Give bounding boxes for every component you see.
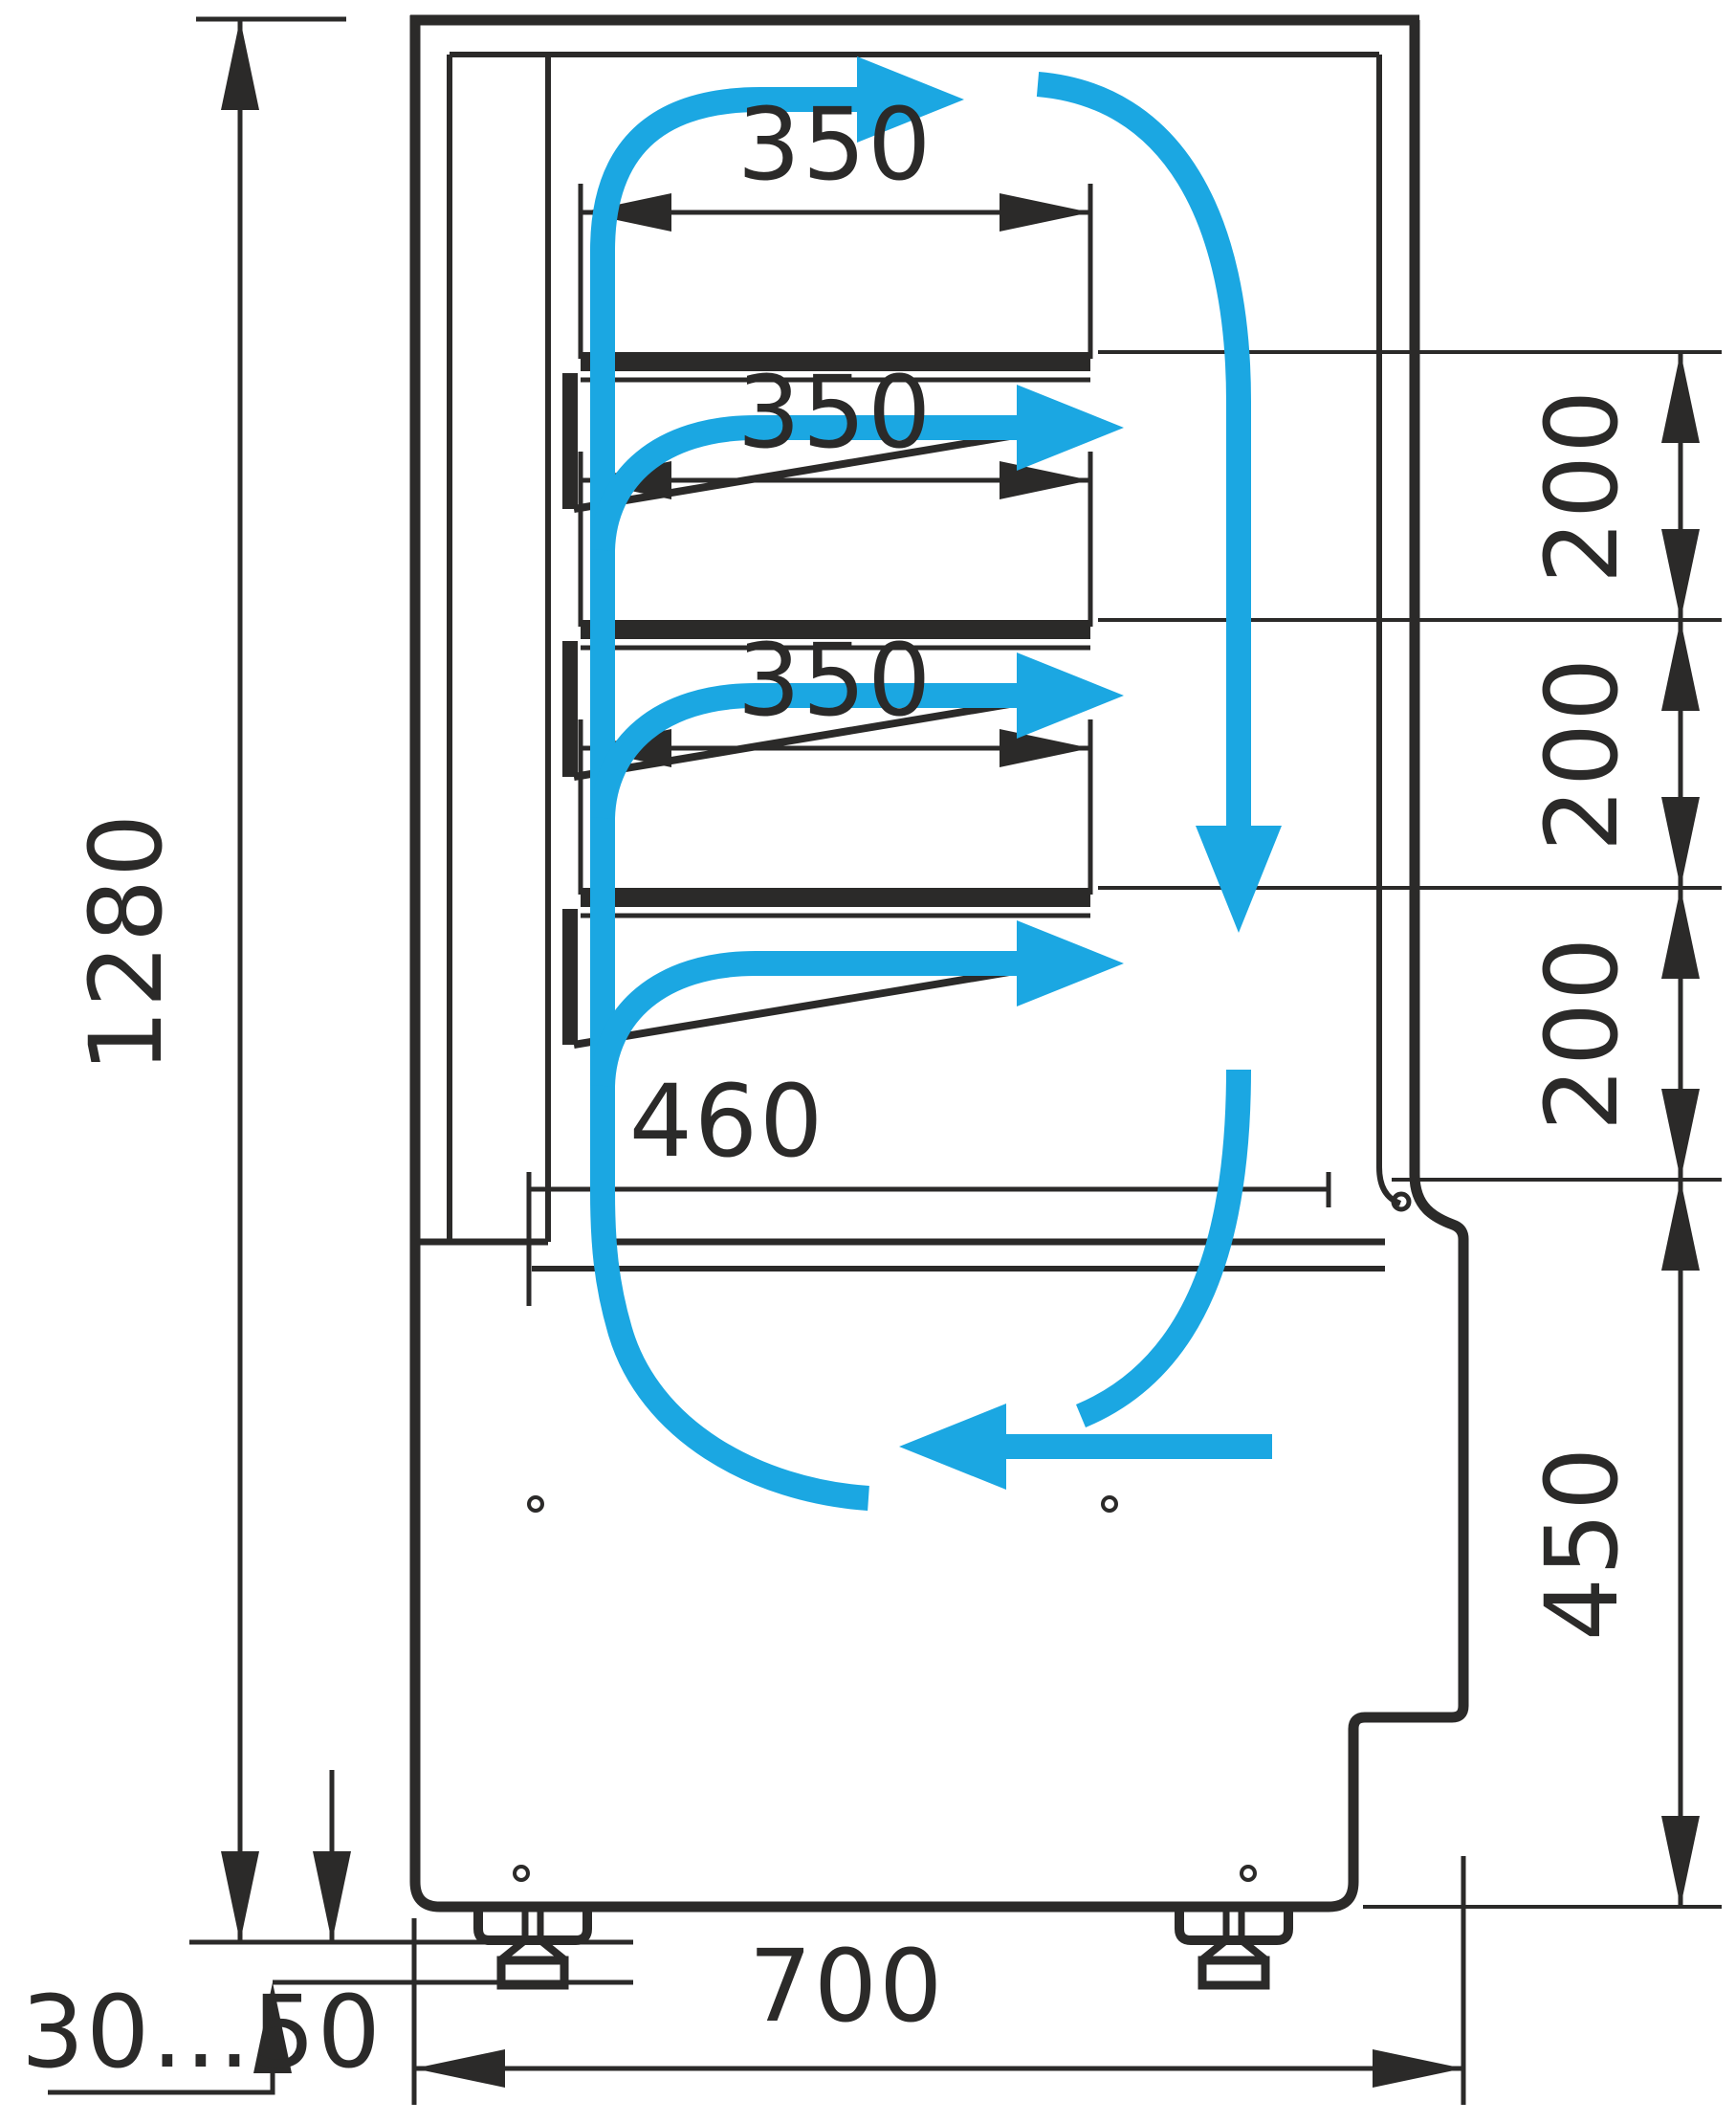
dim-arrowhead-right [1373, 2049, 1463, 2088]
display-case-section-drawing: 350 350 350 460 1280 200 200 200 450 700… [0, 0, 1736, 2123]
dim-arrowhead-left [414, 2049, 505, 2088]
shelf-depth-label-2: 350 [737, 354, 934, 471]
mounting-hole [529, 1497, 542, 1511]
right-foot-flange [1179, 1909, 1288, 1940]
bottom-shelf-depth-label: 460 [629, 1063, 825, 1180]
right-foot-pad [1202, 1960, 1265, 1985]
airflow-arrowhead-right [1017, 920, 1124, 1006]
dim-arrowhead-down [1661, 529, 1700, 620]
airflow-arrows [603, 84, 1272, 1498]
airflow-arrowhead-left [899, 1404, 1006, 1490]
dim-arrowhead-right [1000, 461, 1090, 499]
mounting-hole [1242, 1867, 1255, 1880]
dim-arrowhead-right [1000, 193, 1090, 232]
dim-arrowhead-down [1661, 1816, 1700, 1907]
left-foot [478, 1909, 587, 1985]
airflow-arrowhead-down [1196, 826, 1282, 933]
airflow-back-duct-up [603, 100, 868, 1498]
dim-arrowhead-up [1661, 1180, 1700, 1271]
dimension-arrowheads [221, 19, 1700, 2088]
shelf-depth-label-1: 350 [737, 86, 934, 203]
shelf-gap-label-3: 200 [1524, 936, 1640, 1132]
right-foot [1179, 1909, 1288, 1985]
overall-depth-label: 700 [749, 1928, 945, 2045]
left-foot-flange [478, 1909, 587, 1940]
dim-arrowhead-right [1000, 729, 1090, 767]
dim-arrowhead-up [1661, 352, 1700, 443]
shelf-gap-label-1: 200 [1524, 388, 1640, 585]
shelf-depth-label-3: 350 [737, 622, 934, 739]
mounting-hole [515, 1867, 528, 1880]
dim-arrowhead-down [313, 1851, 351, 1942]
dim-arrowhead-up [1661, 620, 1700, 711]
overall-height-label: 1280 [68, 812, 185, 1073]
dimension-linework [48, 19, 1722, 2105]
airflow-arrowhead-right [1017, 652, 1124, 739]
dim-arrowhead-down [221, 1851, 259, 1942]
base-height-label: 450 [1524, 1446, 1640, 1642]
dim-arrowhead-up [1661, 888, 1700, 979]
technical-drawing-page: 350 350 350 460 1280 200 200 200 450 700… [0, 0, 1736, 2123]
dim-arrowhead-down [1661, 1089, 1700, 1180]
mounting-hole [1103, 1497, 1116, 1511]
dim-arrowhead-down [1661, 797, 1700, 888]
shelf-gap-label-2: 200 [1524, 656, 1640, 852]
feet-height-range-label: 30...50 [21, 1974, 383, 2090]
hinge-pivot-hole [1394, 1194, 1409, 1209]
shelf-3-slab [581, 888, 1090, 907]
detail-holes [515, 1194, 1409, 1880]
height-dim-line [196, 19, 346, 1942]
glass-front-inner-line [1379, 55, 1400, 1204]
dim-arrowhead-up [221, 19, 259, 110]
airflow-arrowhead-right [1017, 385, 1124, 471]
dimension-labels: 350 350 350 460 1280 200 200 200 450 700… [21, 86, 1640, 2090]
